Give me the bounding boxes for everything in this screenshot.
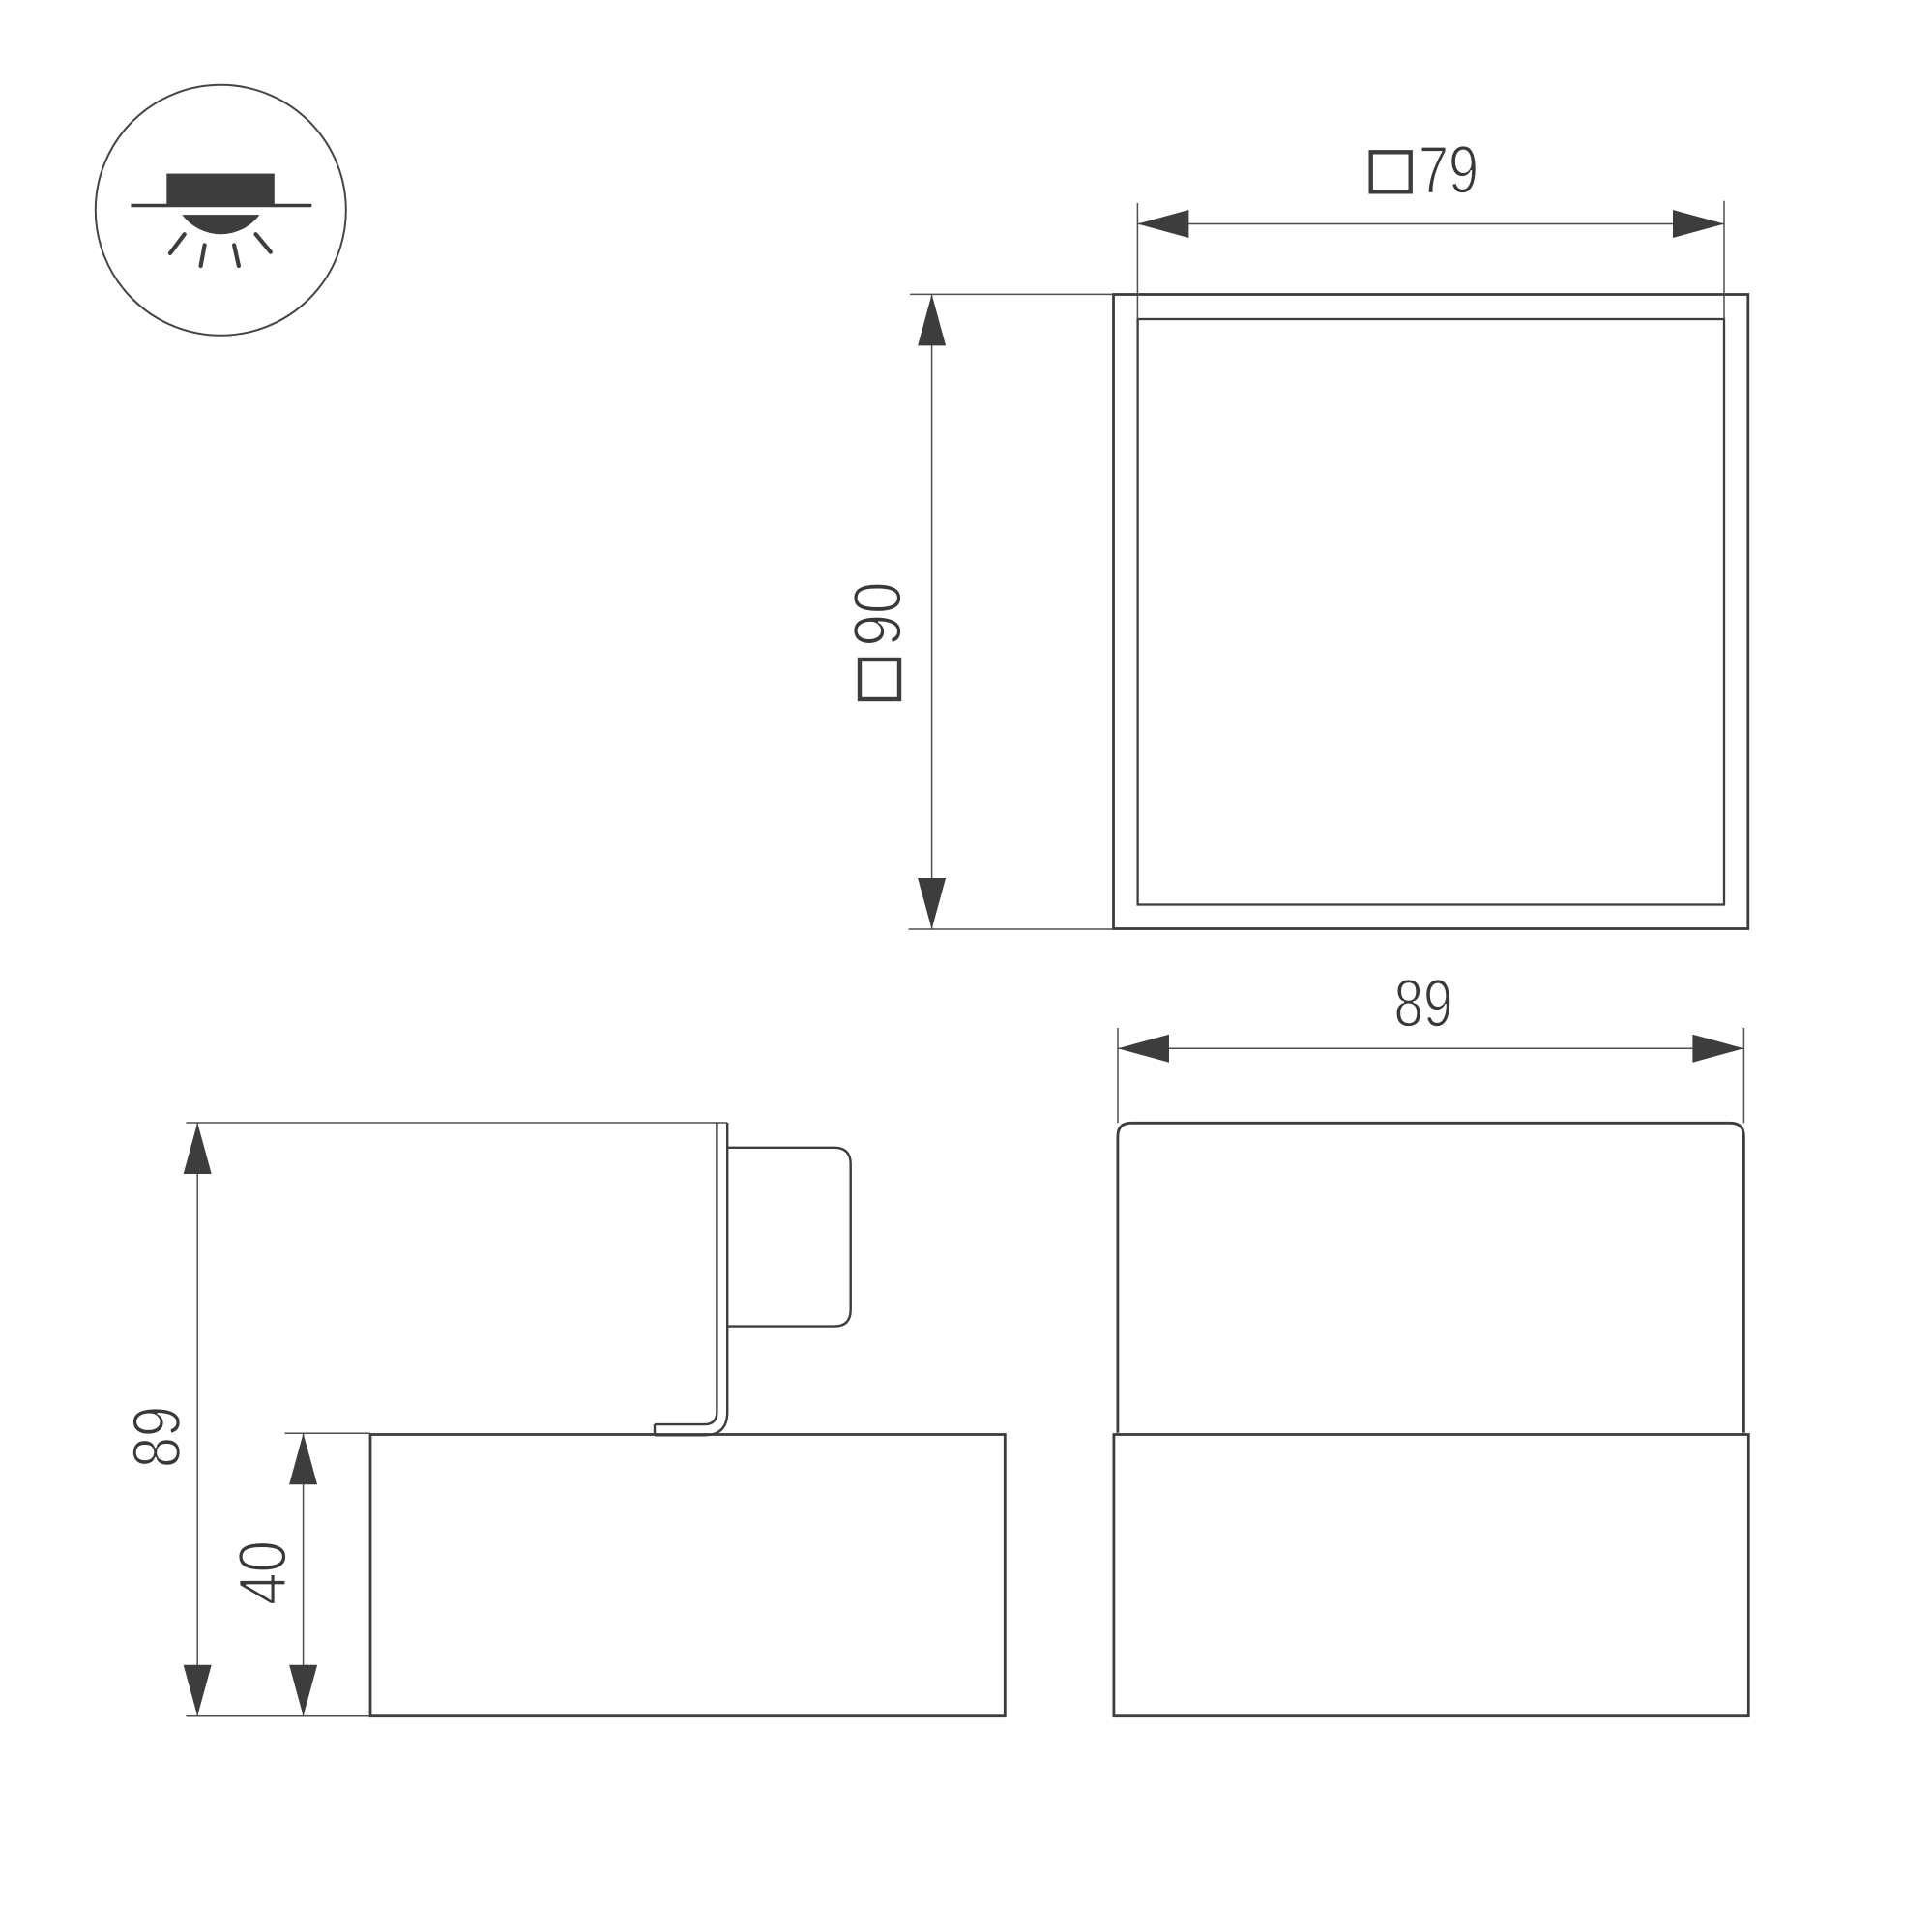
svg-text:90: 90 xyxy=(840,582,916,647)
svg-text:79: 79 xyxy=(1419,132,1478,208)
svg-text:89: 89 xyxy=(119,1406,194,1468)
svg-text:40: 40 xyxy=(225,1540,301,1605)
svg-text:89: 89 xyxy=(1394,966,1453,1041)
